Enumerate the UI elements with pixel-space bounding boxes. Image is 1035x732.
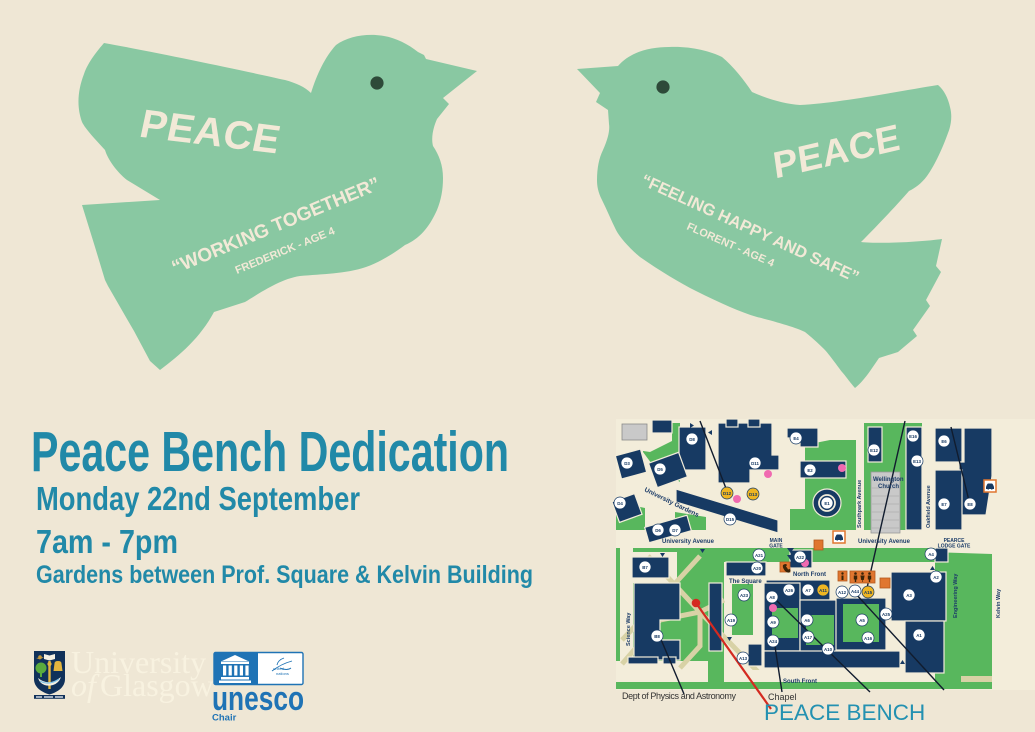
svg-text:A15: A15 xyxy=(864,590,873,595)
svg-text:E13: E13 xyxy=(913,459,921,464)
svg-text:Dept of Physics and Astronomy: Dept of Physics and Astronomy xyxy=(622,691,737,701)
svg-text:Oakfield Avenue: Oakfield Avenue xyxy=(926,485,932,528)
svg-text:D3: D3 xyxy=(624,461,630,466)
svg-text:Engineering Way: Engineering Way xyxy=(953,573,959,618)
svg-text:Kelvin Way: Kelvin Way xyxy=(996,588,1002,618)
svg-text:E16: E16 xyxy=(909,434,917,439)
svg-text:LODGE GATE: LODGE GATE xyxy=(938,544,971,550)
svg-text:E6: E6 xyxy=(941,439,947,444)
svg-text:University Avenue: University Avenue xyxy=(662,539,715,545)
svg-text:D13: D13 xyxy=(749,492,758,497)
svg-text:Gardens between Prof. Square &: Gardens between Prof. Square & Kelvin Bu… xyxy=(36,561,533,589)
svg-text:A26: A26 xyxy=(785,588,794,593)
svg-text:of: of xyxy=(71,667,100,703)
svg-text:Monday 22nd September: Monday 22nd September xyxy=(36,480,360,517)
svg-text:South Front: South Front xyxy=(783,679,817,685)
svg-text:A11: A11 xyxy=(819,588,827,593)
svg-text:D5: D5 xyxy=(657,467,663,472)
svg-text:The Square: The Square xyxy=(729,579,762,585)
svg-text:D6: D6 xyxy=(655,528,661,533)
svg-text:B7: B7 xyxy=(642,565,648,570)
svg-text:A12: A12 xyxy=(838,590,847,595)
svg-text:A3: A3 xyxy=(906,593,912,598)
svg-text:GATE: GATE xyxy=(769,544,783,550)
svg-text:A5: A5 xyxy=(859,618,865,623)
svg-text:A1: A1 xyxy=(916,633,922,638)
svg-text:nations: nations xyxy=(276,671,289,676)
svg-text:A16: A16 xyxy=(864,636,873,641)
svg-text:Wellington: Wellington xyxy=(873,477,904,483)
svg-text:A9: A9 xyxy=(770,620,776,625)
svg-text:North Front: North Front xyxy=(793,572,826,578)
svg-text:A22: A22 xyxy=(796,555,805,560)
svg-text:A6: A6 xyxy=(804,618,810,623)
svg-text:Chair: Chair xyxy=(212,713,237,724)
svg-text:A10: A10 xyxy=(824,647,833,652)
svg-text:A13: A13 xyxy=(739,656,748,661)
svg-text:D12: D12 xyxy=(723,491,732,496)
svg-text:D7: D7 xyxy=(672,528,678,533)
svg-text:E7: E7 xyxy=(941,502,947,507)
svg-text:A7: A7 xyxy=(805,588,811,593)
svg-text:University Avenue: University Avenue xyxy=(858,539,911,545)
svg-text:A44: A44 xyxy=(851,589,860,594)
svg-text:Glasgow: Glasgow xyxy=(100,667,214,703)
svg-text:E4: E4 xyxy=(793,436,799,441)
svg-text:D8: D8 xyxy=(689,437,695,442)
svg-text:D11: D11 xyxy=(751,461,759,466)
svg-text:A24: A24 xyxy=(769,639,778,644)
svg-text:A23: A23 xyxy=(740,593,749,598)
svg-text:Southpark Avenue: Southpark Avenue xyxy=(857,480,863,528)
svg-text:E8: E8 xyxy=(967,502,973,507)
svg-text:A25: A25 xyxy=(882,612,891,617)
svg-text:Science Way: Science Way xyxy=(626,612,632,646)
svg-text:A4: A4 xyxy=(928,552,934,557)
svg-text:B8: B8 xyxy=(654,634,660,639)
svg-text:A20: A20 xyxy=(753,566,762,571)
svg-text:D15: D15 xyxy=(726,517,735,522)
svg-text:7am - 7pm: 7am - 7pm xyxy=(36,523,178,560)
svg-text:D4: D4 xyxy=(617,501,623,506)
svg-text:A8: A8 xyxy=(769,595,775,600)
svg-text:E12: E12 xyxy=(870,448,878,453)
svg-text:Peace Bench Dedication: Peace Bench Dedication xyxy=(31,420,509,484)
svg-text:A17: A17 xyxy=(804,635,813,640)
svg-text:A19: A19 xyxy=(727,618,736,623)
svg-text:E1: E1 xyxy=(824,501,830,506)
svg-text:Church: Church xyxy=(878,484,899,490)
svg-text:A21: A21 xyxy=(755,553,764,558)
svg-text:E2: E2 xyxy=(807,468,813,473)
svg-text:PEACE BENCH: PEACE BENCH xyxy=(764,700,925,725)
svg-text:A2: A2 xyxy=(933,575,939,580)
